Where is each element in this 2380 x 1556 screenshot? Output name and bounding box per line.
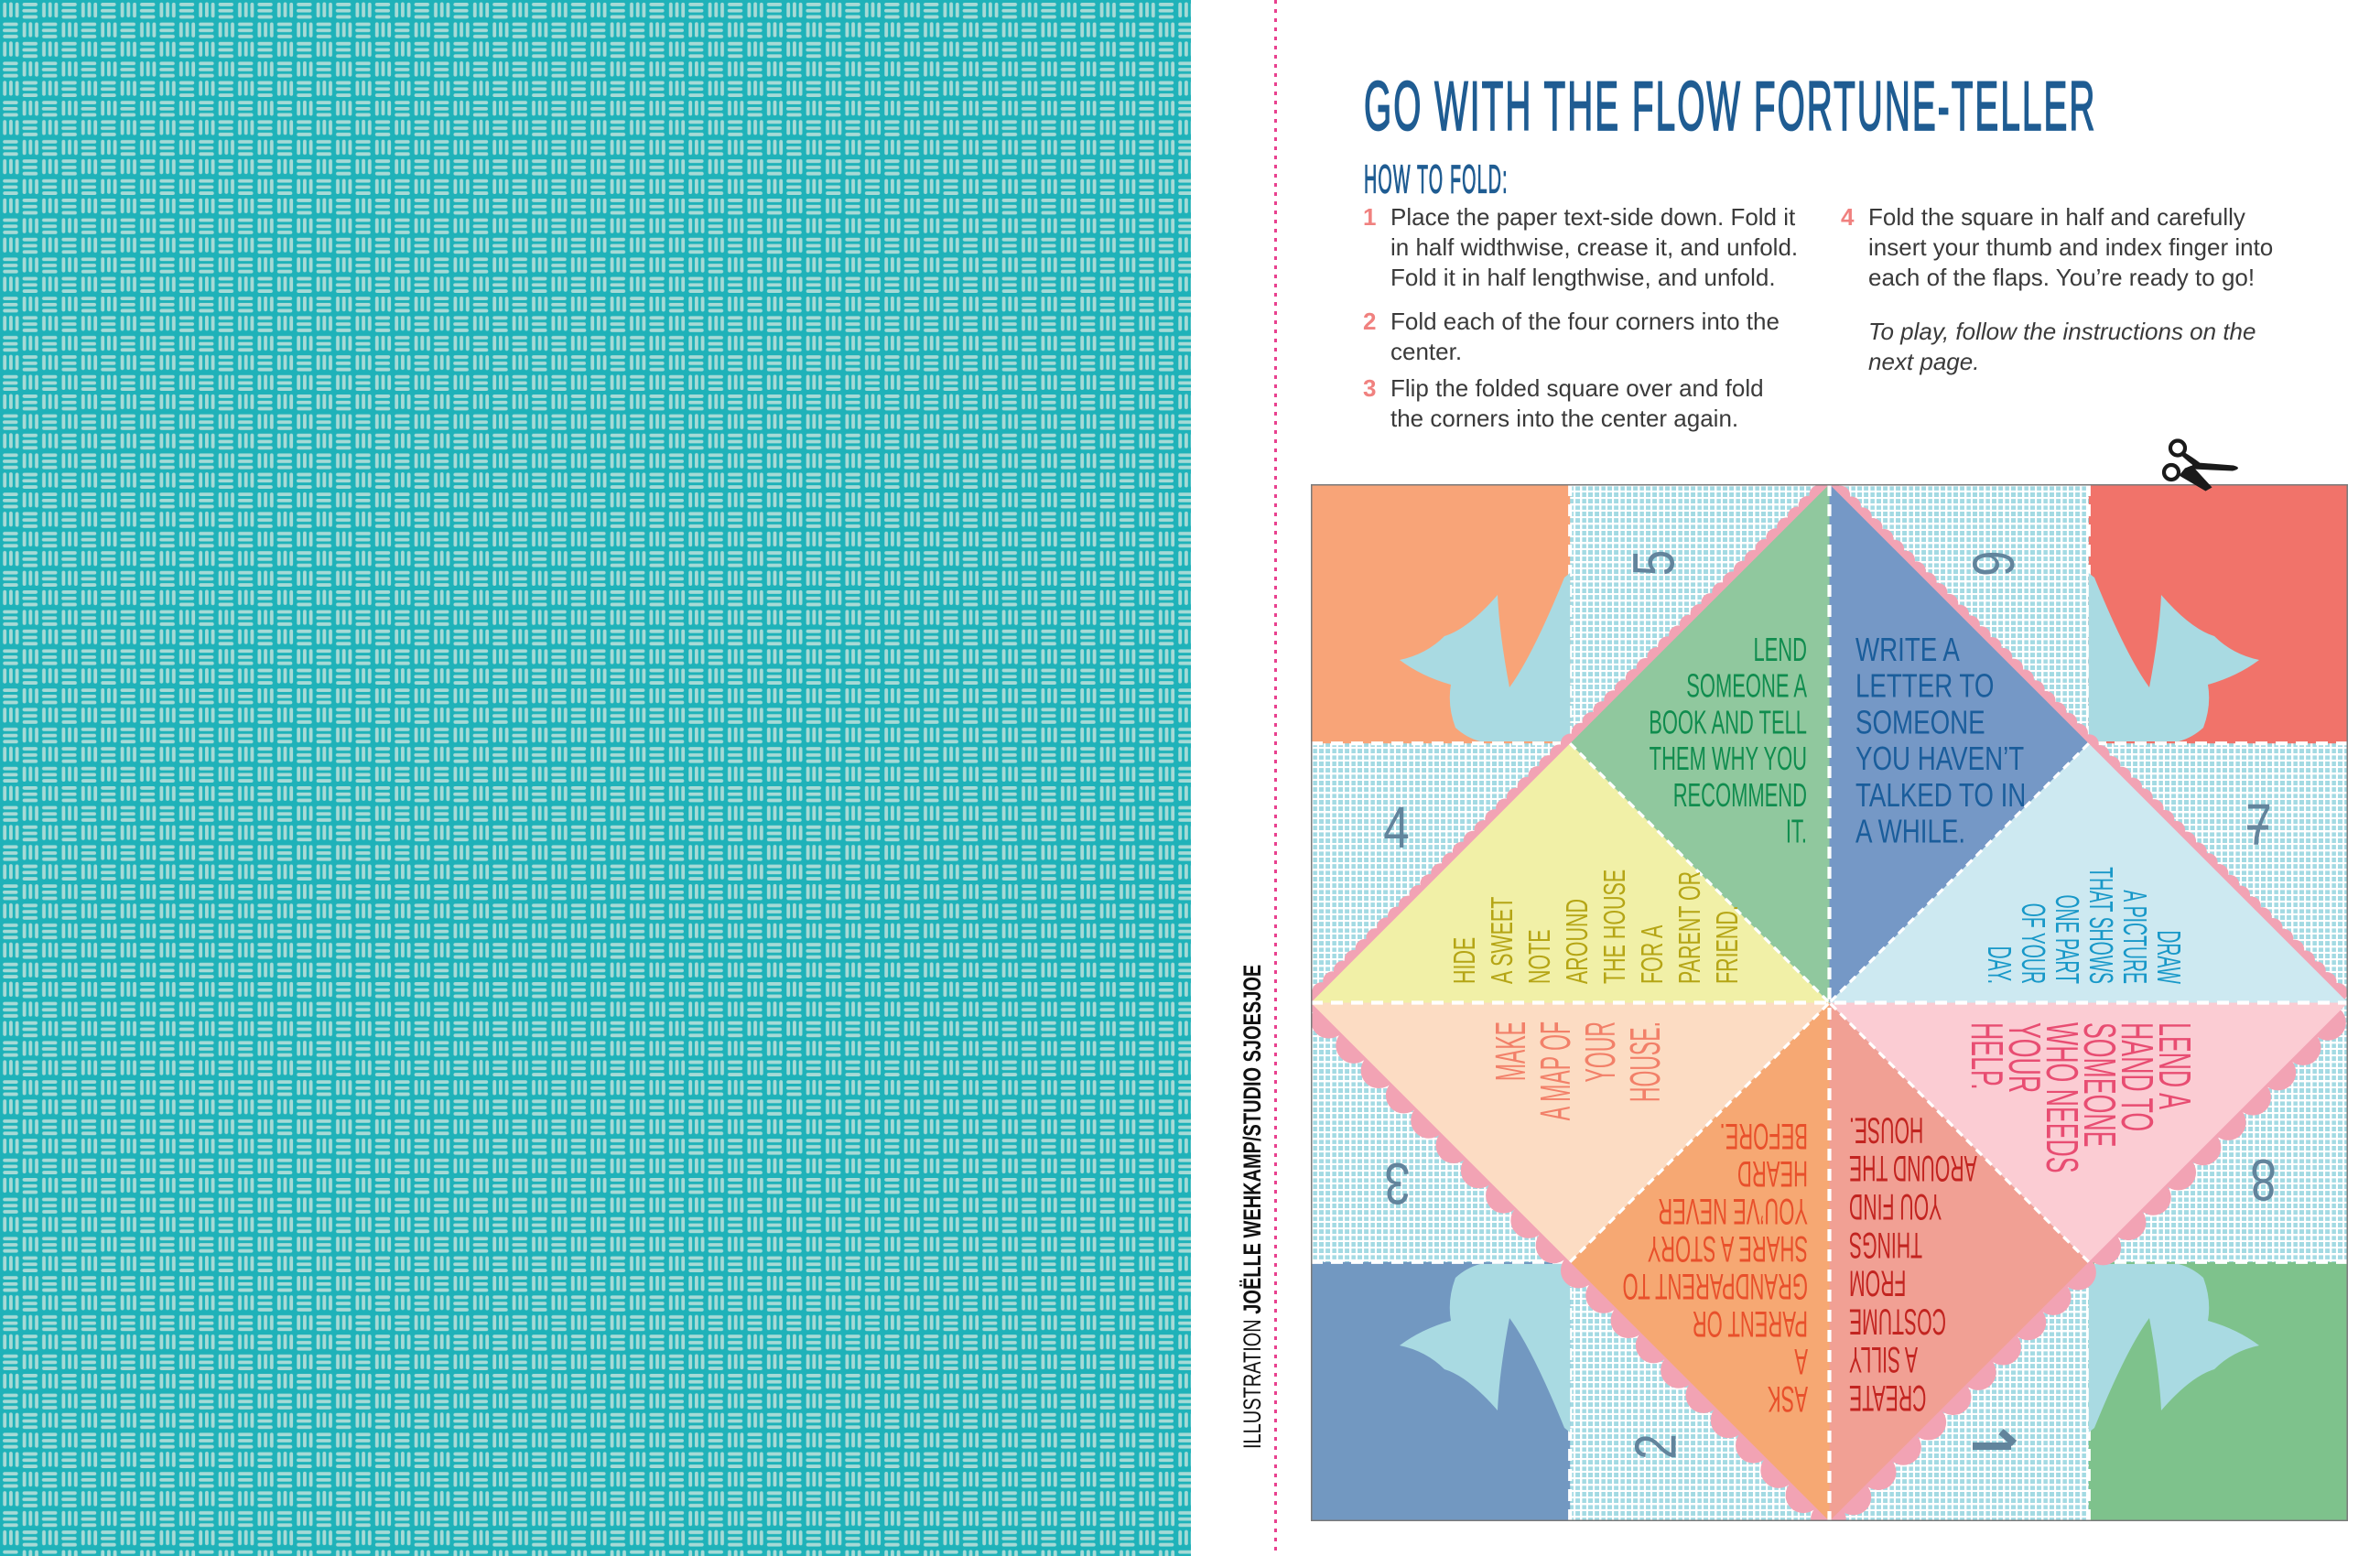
svg-text:NOTE: NOTE (1522, 929, 1556, 984)
svg-text:FROM: FROM (1849, 1263, 1906, 1304)
svg-text:2: 2 (1624, 1433, 1689, 1459)
svg-text:SHARE A STORY: SHARE A STORY (1648, 1228, 1808, 1270)
svg-text:LETTER TO: LETTER TO (1855, 667, 1994, 704)
svg-text:FRIEND.: FRIEND. (1710, 905, 1744, 984)
svg-text:AROUND: AROUND (1560, 899, 1594, 984)
svg-text:3: 3 (1384, 1151, 1410, 1216)
svg-text:ONE PART: ONE PART (2048, 894, 2084, 984)
svg-text:HEARD: HEARD (1737, 1153, 1808, 1194)
svg-text:LEND: LEND (1753, 632, 1807, 669)
svg-text:YOU’VE NEVER: YOU’VE NEVER (1658, 1191, 1808, 1232)
svg-text:TALKED TO IN: TALKED TO IN (1855, 776, 2026, 813)
svg-text:5: 5 (1622, 550, 1687, 576)
svg-text:BEFORE.: BEFORE. (1719, 1116, 1808, 1157)
svg-text:WRITE A: WRITE A (1855, 632, 1960, 668)
svg-text:IT.: IT. (1786, 814, 1807, 850)
svg-text:4: 4 (1383, 796, 1409, 861)
svg-text:A SWEET: A SWEET (1485, 897, 1519, 984)
svg-text:A SILLY: A SILLY (1849, 1339, 1918, 1380)
svg-text:YOUR: YOUR (1576, 1021, 1624, 1082)
svg-text:HOUSE.: HOUSE. (1621, 1021, 1669, 1102)
svg-text:YOU HAVEN’T: YOU HAVEN’T (1855, 740, 2024, 777)
svg-text:HOUSE.: HOUSE. (1849, 1110, 1923, 1151)
svg-text:YOU FIND: YOU FIND (1849, 1186, 1942, 1227)
svg-text:DRAW: DRAW (2149, 930, 2186, 984)
svg-text:THINGS: THINGS (1849, 1225, 1922, 1266)
svg-text:A PICTURE: A PICTURE (2115, 890, 2152, 984)
svg-text:THAT SHOWS: THAT SHOWS (2082, 867, 2118, 984)
svg-text:THE HOUSE: THE HOUSE (1597, 870, 1631, 984)
svg-text:RECOMMEND: RECOMMEND (1673, 777, 1807, 814)
svg-text:MAKE: MAKE (1487, 1021, 1534, 1081)
svg-text:PARENT OR: PARENT OR (1693, 1303, 1808, 1345)
svg-text:FOR A: FOR A (1635, 924, 1669, 984)
svg-text:6: 6 (1960, 550, 2025, 576)
svg-text:PARENT OR: PARENT OR (1672, 871, 1706, 984)
svg-text:A: A (1794, 1341, 1808, 1382)
svg-text:CREATE: CREATE (1849, 1378, 1926, 1419)
svg-text:AROUND THE: AROUND THE (1849, 1148, 1977, 1189)
svg-text:SOMEONE A: SOMEONE A (1686, 668, 1807, 705)
svg-text:8: 8 (2250, 1147, 2276, 1212)
svg-text:GRANDPARENT TO: GRANDPARENT TO (1623, 1266, 1808, 1307)
svg-text:THEM WHY YOU: THEM WHY YOU (1650, 741, 1807, 778)
svg-text:SOMEONE: SOMEONE (1855, 704, 1985, 740)
svg-text:A WHILE.: A WHILE. (1855, 813, 1965, 849)
svg-text:HIDE: HIDE (1447, 937, 1481, 984)
svg-text:DAY.: DAY. (1980, 946, 2017, 984)
svg-text:ASK: ASK (1768, 1378, 1808, 1420)
svg-text:COSTUME: COSTUME (1849, 1302, 1946, 1343)
svg-text:HELP.: HELP. (1962, 1022, 2012, 1090)
svg-text:A MAP OF: A MAP OF (1531, 1021, 1579, 1120)
svg-text:OF YOUR: OF YOUR (2014, 903, 2050, 984)
svg-text:BOOK AND TELL: BOOK AND TELL (1649, 705, 1807, 741)
